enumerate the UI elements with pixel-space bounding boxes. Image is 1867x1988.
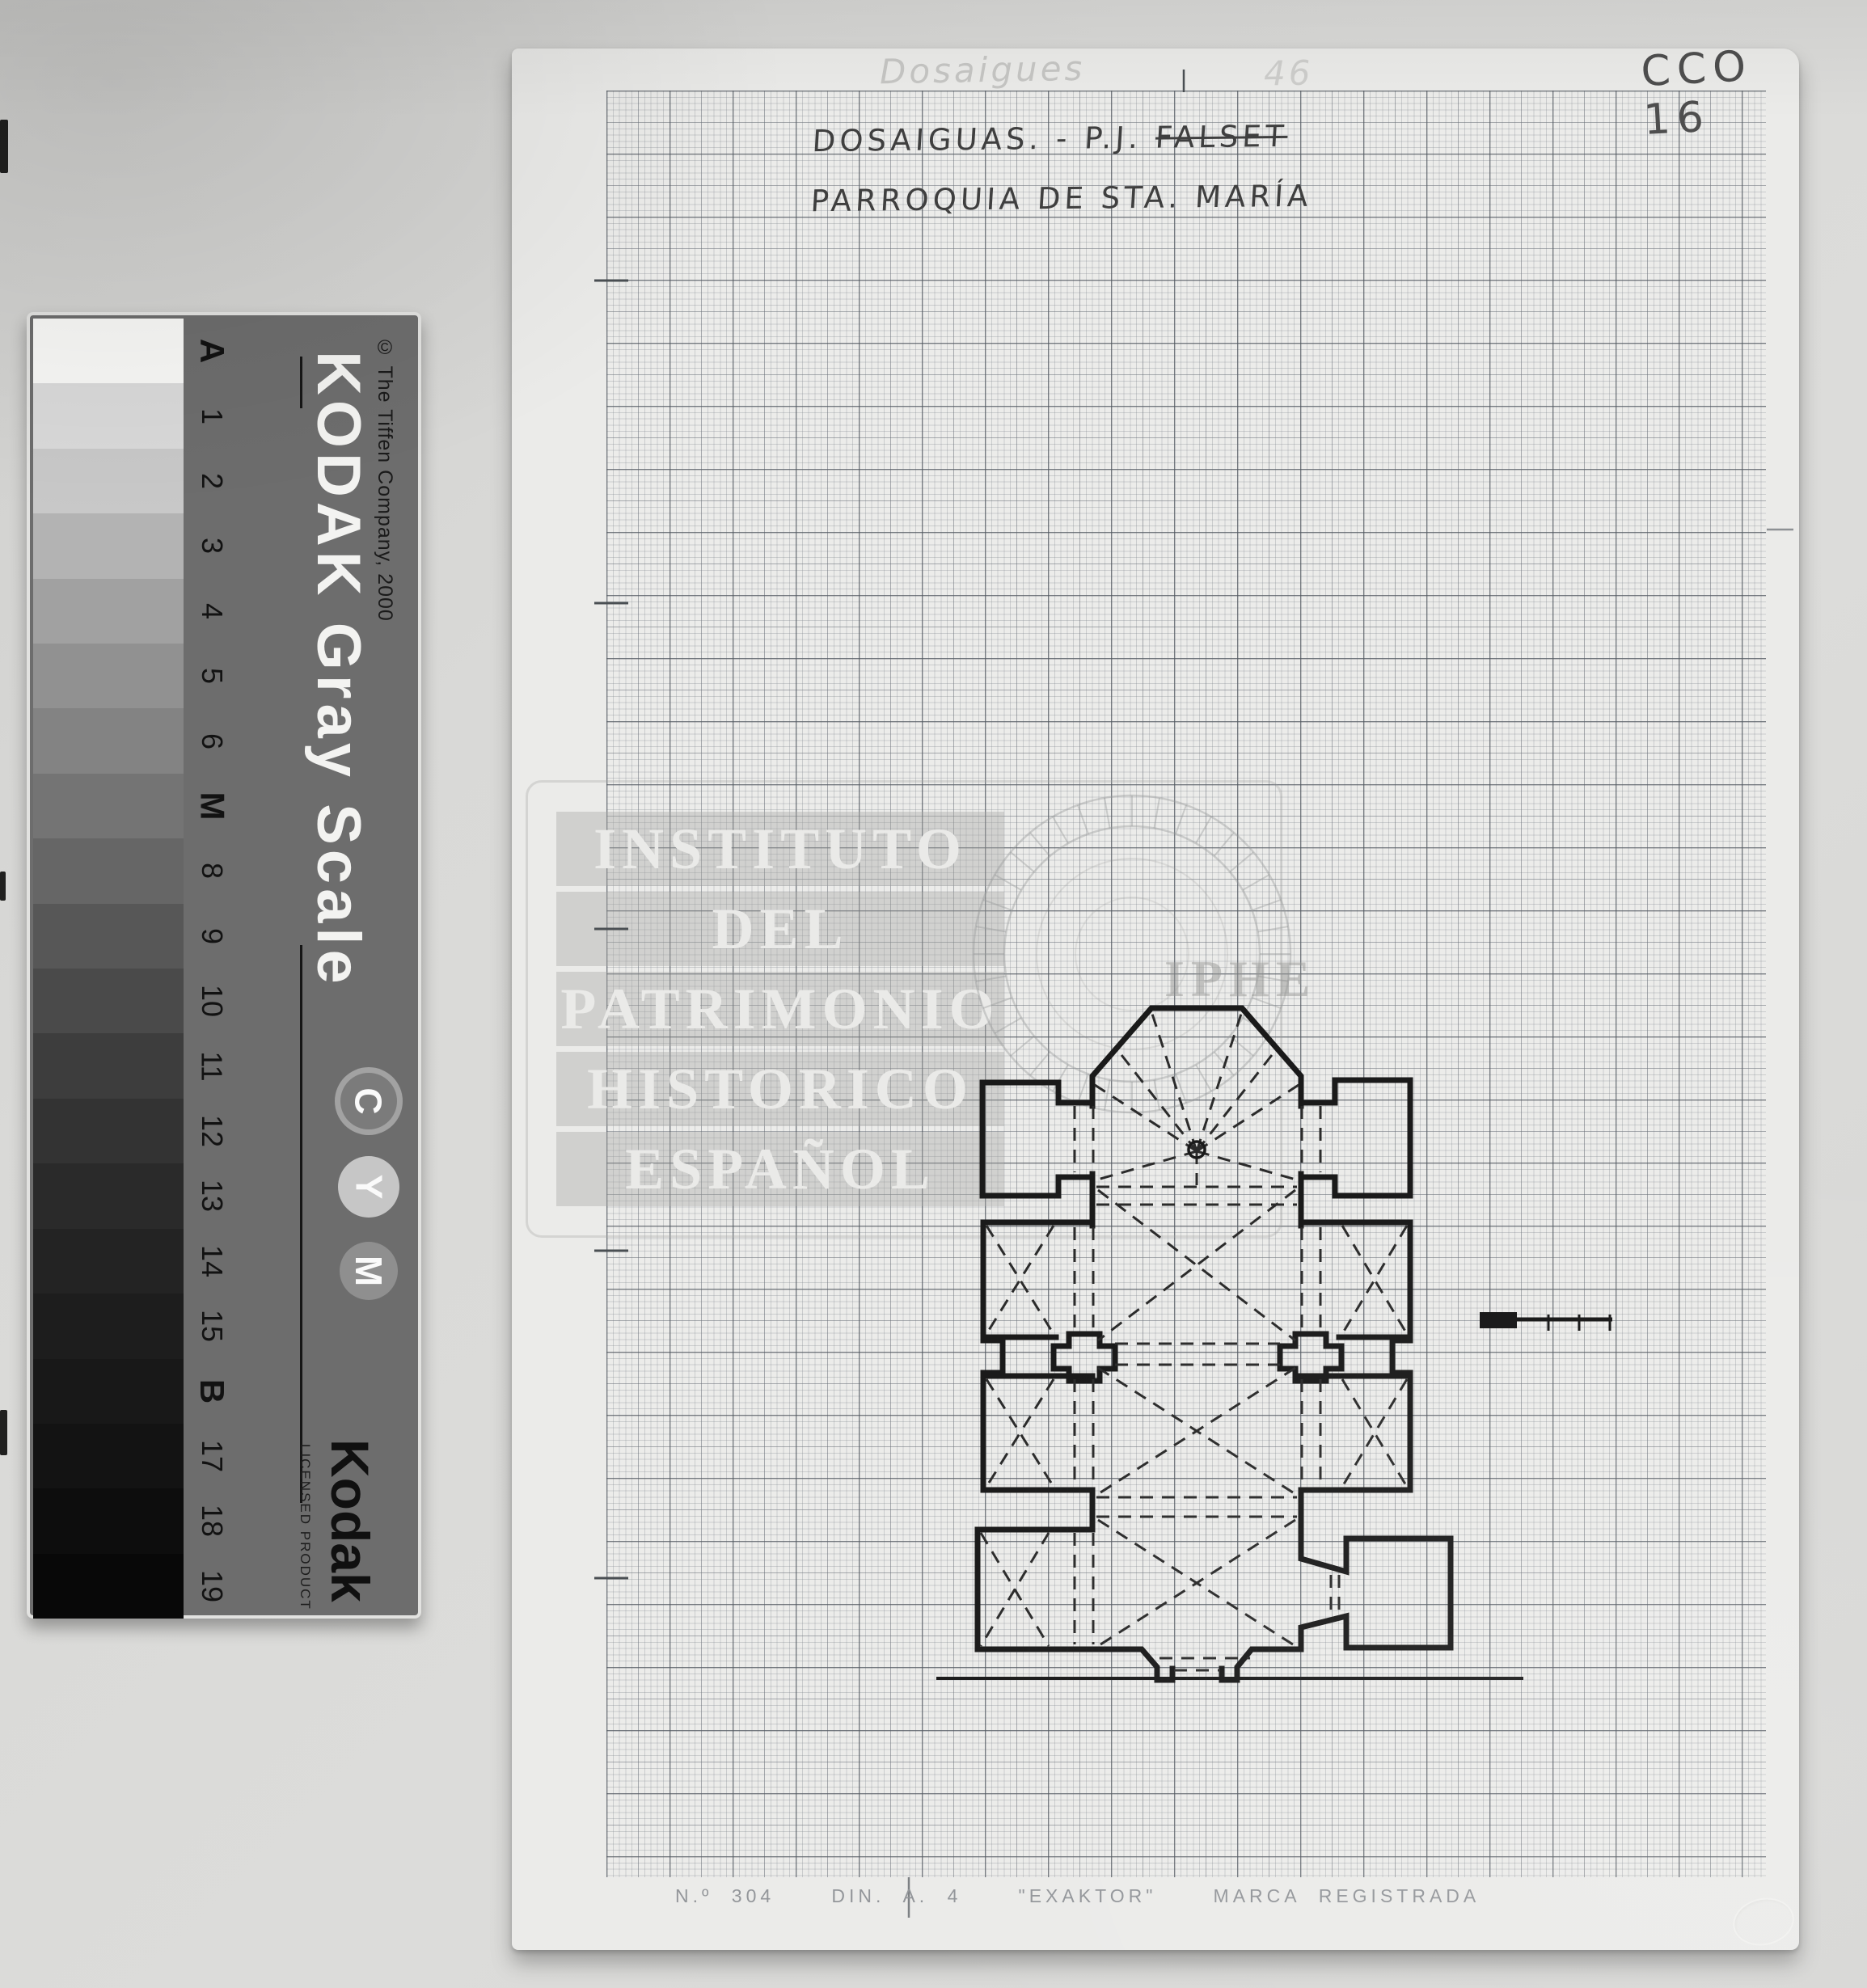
graph-paper-sheet: Dosaigues 46 CCO 16 DOSAIGUAS. - P.J. FA… — [512, 49, 1799, 1950]
gray-step-patch — [33, 579, 184, 644]
rule-line — [300, 357, 302, 408]
gray-step-patch — [33, 1554, 184, 1619]
gray-step-label: 17 — [184, 1424, 240, 1488]
gray-step-label: 14 — [184, 1229, 240, 1294]
gray-step-label: B — [184, 1358, 240, 1423]
gray-step-patch — [33, 1229, 184, 1294]
gray-step-patch — [33, 383, 184, 448]
gray-step-patch — [33, 1488, 184, 1553]
gray-step-patch — [33, 319, 184, 383]
graphic-scale-bar — [1480, 1312, 1612, 1331]
gray-step-label: 15 — [184, 1294, 240, 1358]
gray-step-label: 4 — [184, 579, 240, 644]
gray-step-label: 8 — [184, 838, 240, 903]
scan-speck — [0, 1410, 7, 1455]
gray-step-patch — [33, 969, 184, 1033]
gray-step-label: 6 — [184, 708, 240, 773]
gray-step-label: M — [184, 774, 240, 838]
gray-step-label: 12 — [184, 1099, 240, 1163]
seal-text: IPHE — [1164, 950, 1316, 1007]
gray-step-patch — [33, 1163, 184, 1228]
gray-step-label: 9 — [184, 904, 240, 969]
yellow-patch-circle: Y — [338, 1156, 399, 1218]
scan-speck — [0, 872, 6, 901]
gray-step-patch — [33, 1294, 184, 1358]
gray-step-label: 11 — [184, 1033, 240, 1098]
gray-step-label: A — [184, 319, 240, 383]
kodak-logo: Kodak — [319, 1439, 381, 1615]
magenta-patch-circle: M — [340, 1242, 398, 1300]
scan-speck — [0, 120, 8, 173]
cyan-letter: C — [347, 1087, 391, 1114]
gray-step-patch — [33, 838, 184, 903]
cyan-patch-circle: C — [335, 1067, 403, 1135]
gray-step-label: 13 — [184, 1163, 240, 1228]
gray-steps — [33, 319, 184, 1619]
gray-step-patch — [33, 1424, 184, 1488]
gray-step-patch — [33, 449, 184, 513]
gray-step-patch — [33, 513, 184, 578]
yellow-letter: Y — [347, 1175, 391, 1200]
gray-step-label: 10 — [184, 969, 240, 1033]
paper-brand-footer: N.º 304 DIN. A. 4 "EXAKTOR" MARCA REGIST… — [675, 1885, 1480, 1907]
gray-step-patch — [33, 904, 184, 969]
kodak-license-text: LICENSED PRODUCT — [297, 1444, 313, 1614]
gray-step-label: 19 — [184, 1554, 240, 1619]
gray-step-patch — [33, 644, 184, 708]
gray-step-patch — [33, 1359, 184, 1424]
card-copyright: © The Tiffen Company, 2000 — [373, 336, 396, 1024]
sheet-overlay-drawing: IPHE — [512, 49, 1799, 1950]
gray-step-label: 1 — [184, 383, 240, 448]
gray-step-label: 18 — [184, 1488, 240, 1553]
gray-step-patch — [33, 1099, 184, 1163]
gray-step-label: 5 — [184, 644, 240, 708]
gray-step-patch — [33, 1033, 184, 1098]
gray-step-numbers: A123456M89101112131415B171819 — [184, 319, 240, 1619]
gray-scale-card: A123456M89101112131415B171819 KODAK Gray… — [27, 312, 421, 1619]
gray-step-patch — [33, 774, 184, 838]
gray-step-patch — [33, 708, 184, 773]
magenta-letter: M — [347, 1256, 391, 1286]
gray-step-label: 3 — [184, 513, 240, 578]
rule-line — [300, 945, 302, 1503]
gray-step-label: 2 — [184, 449, 240, 513]
scanned-document: Dosaigues 46 CCO 16 DOSAIGUAS. - P.J. FA… — [0, 0, 1867, 1988]
